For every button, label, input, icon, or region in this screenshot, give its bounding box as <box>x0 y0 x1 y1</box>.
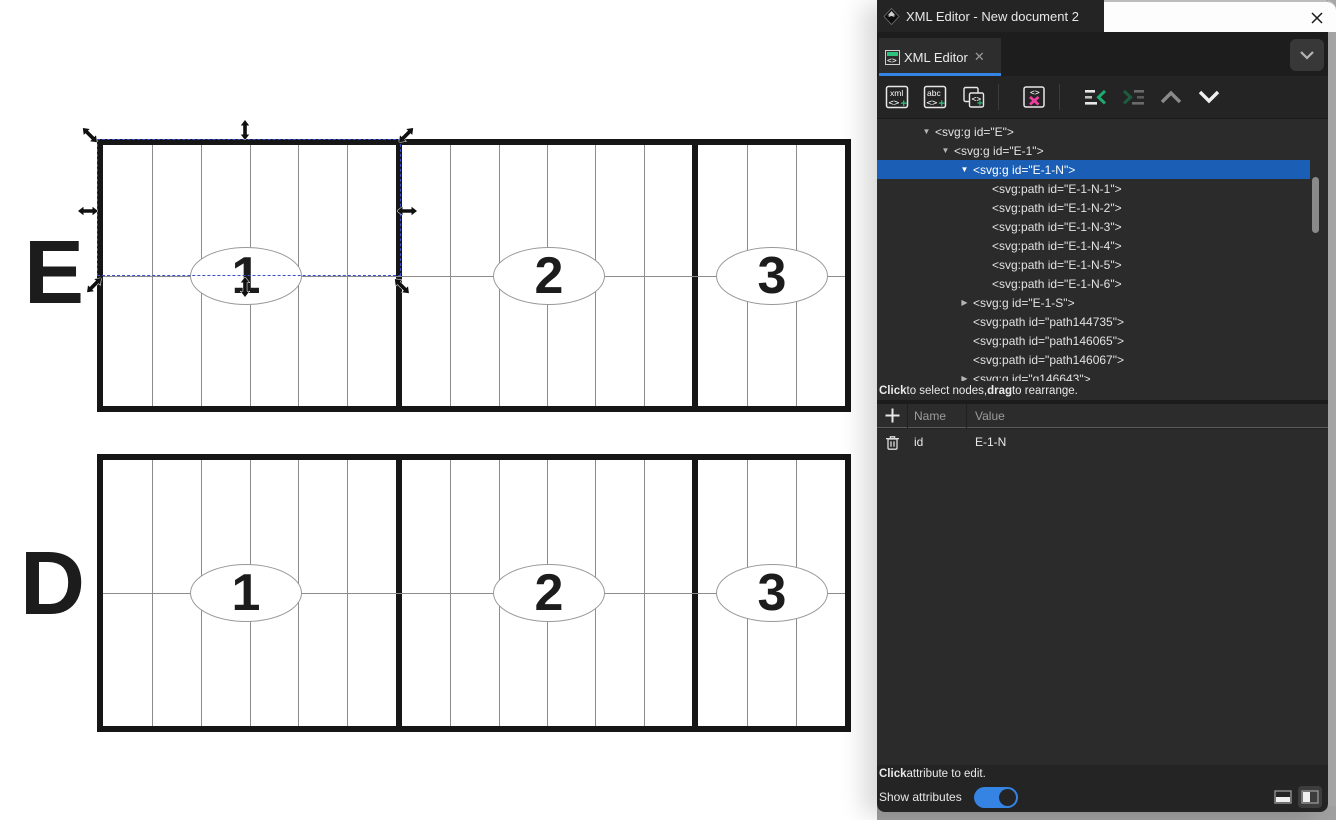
tree-node[interactable]: <svg:path id="path146067"> <box>877 350 1310 369</box>
tree-node-tag: <svg:path id="E-1-N-6"> <box>992 277 1122 291</box>
toolbar-separator <box>998 84 999 110</box>
tree-node[interactable]: <svg:path id="E-1-N-6"> <box>877 274 1310 293</box>
tree-node[interactable]: ▶<svg:g id="g146643"> <box>877 369 1310 381</box>
tab-overflow-menu-button[interactable] <box>1290 39 1324 71</box>
tree-node-tag: <svg:path id="E-1-N-5"> <box>992 258 1122 272</box>
tree-node-tag: <svg:path id="path146065"> <box>973 334 1124 348</box>
show-attributes-label: Show attributes <box>879 790 962 804</box>
tree-node[interactable]: <svg:path id="path146065"> <box>877 331 1310 350</box>
tab-close-icon[interactable]: ✕ <box>974 49 985 65</box>
tree-node-tag: <svg:path id="E-1-N-1"> <box>992 182 1122 196</box>
add-attribute-button[interactable] <box>877 402 907 430</box>
row-label-D: D <box>20 539 85 629</box>
svg-text:<>: <> <box>888 98 899 108</box>
tab-xml-editor[interactable]: <> XML Editor ✕ <box>879 38 1001 76</box>
tree-node[interactable]: ▼<svg:g id="E-1-N"> <box>877 160 1310 179</box>
dialog-title: XML Editor - New document 2 <box>906 9 1079 24</box>
main-window-titlebar <box>1104 0 1336 32</box>
tree-node-tag: <svg:g id="E-1-S"> <box>973 296 1075 310</box>
tree-hint-text: to select nodes, <box>907 385 988 397</box>
toggle-knob <box>999 789 1016 806</box>
tab-label: XML Editor <box>904 50 968 65</box>
expander-collapsed-icon[interactable]: ▶ <box>956 374 973 381</box>
xml-toolbar: xml<>+abc<>+<>+<> <box>877 76 1328 118</box>
layout-vertical-button[interactable] <box>1298 786 1322 808</box>
svg-text:xml: xml <box>890 88 903 98</box>
delete-node-button[interactable]: <> <box>1020 83 1048 111</box>
close-window-button[interactable] <box>1308 9 1326 27</box>
selection-scale-handle[interactable] <box>397 203 417 213</box>
new-text-node-button[interactable]: abc<>+ <box>921 83 949 111</box>
tree-node-tag: <svg:g id="E"> <box>935 125 1014 139</box>
expander-collapsed-icon[interactable]: ▶ <box>956 298 973 307</box>
horizontal-split-icon <box>1274 790 1292 804</box>
tree-node-tag: <svg:path id="path144735"> <box>973 315 1124 329</box>
section-number-ellipse: 2 <box>493 564 605 622</box>
show-attributes-toggle[interactable] <box>974 787 1018 808</box>
attr-hint-text: Click <box>879 768 907 780</box>
tree-hint: Click to select nodes, drag to rearrange… <box>877 381 1328 400</box>
selection-bbox <box>97 139 401 276</box>
duplicate-node-button[interactable]: <>+ <box>959 83 987 111</box>
new-element-node-button[interactable]: xml<>+ <box>883 83 911 111</box>
trash-icon <box>885 434 900 450</box>
tree-node-tag: <svg:g id="g146643"> <box>973 372 1091 382</box>
tree-node[interactable]: <svg:path id="E-1-N-5"> <box>877 255 1310 274</box>
tree-node-tag: <svg:g id="E-1-N"> <box>973 163 1075 177</box>
tree-node-tag: <svg:path id="E-1-N-2"> <box>992 201 1122 215</box>
selection-scale-handle[interactable] <box>243 277 253 297</box>
svg-text:<>: <> <box>926 98 937 108</box>
svg-text:abc: abc <box>927 88 941 98</box>
xml-editor-icon: <> <box>885 50 900 65</box>
move-node-up-button[interactable] <box>1157 83 1185 111</box>
section-number-ellipse: 2 <box>493 247 605 305</box>
tree-scrollbar-thumb[interactable] <box>1312 177 1319 233</box>
tree-node[interactable]: <svg:path id="path144735"> <box>877 312 1310 331</box>
selection-scale-handle[interactable] <box>243 120 253 140</box>
tree-node[interactable]: ▼<svg:g id="E"> <box>877 122 1310 141</box>
grid-frame-D: 123 <box>97 454 851 732</box>
section-number-ellipse: 1 <box>190 564 302 622</box>
indent-node-button[interactable] <box>1119 83 1147 111</box>
section-number-ellipse: 3 <box>716 564 828 622</box>
tree-hint-text: to rearrange. <box>1012 385 1078 397</box>
tree-hint-text: drag <box>987 385 1012 397</box>
tree-node[interactable]: ▼<svg:g id="E-1"> <box>877 141 1310 160</box>
move-node-down-button[interactable] <box>1195 83 1223 111</box>
plus-icon <box>884 407 901 424</box>
xml-tree[interactable]: ▼<svg:g id="E">▼<svg:g id="E-1">▼<svg:g … <box>877 118 1328 381</box>
tree-hint-text: Click <box>879 385 907 397</box>
window-edge-right <box>1328 0 1336 820</box>
expander-open-icon[interactable]: ▼ <box>918 127 935 136</box>
attribute-hint: Click attribute to edit. <box>877 766 1328 782</box>
vertical-split-icon <box>1301 790 1319 804</box>
tree-node-tag: <svg:g id="E-1"> <box>954 144 1044 158</box>
tab-strip: <> XML Editor ✕ <box>877 32 1328 76</box>
xml-editor-panel: XML Editor - New document 2 <> XML Edito… <box>877 0 1328 812</box>
tree-node[interactable]: <svg:path id="E-1-N-3"> <box>877 217 1310 236</box>
attr-name[interactable]: id <box>914 435 966 449</box>
tree-node[interactable]: <svg:path id="E-1-N-1"> <box>877 179 1310 198</box>
layout-horizontal-button[interactable] <box>1271 786 1295 808</box>
svg-text:+: + <box>977 98 983 109</box>
tree-node-tag: <svg:path id="E-1-N-4"> <box>992 239 1122 253</box>
unindent-node-button[interactable] <box>1081 83 1109 111</box>
attr-col-name: Name <box>914 409 966 423</box>
tree-node[interactable]: <svg:path id="E-1-N-4"> <box>877 236 1310 255</box>
selection-scale-handle[interactable] <box>78 203 98 213</box>
svg-text:<>: <> <box>1030 88 1040 97</box>
tree-node-tag: <svg:path id="path146067"> <box>973 353 1124 367</box>
delete-attribute-button[interactable] <box>877 428 907 456</box>
expander-open-icon[interactable]: ▼ <box>956 165 973 174</box>
toolbar-separator <box>1059 84 1060 110</box>
attribute-row[interactable]: id E-1-N <box>877 431 1328 453</box>
attribute-table: id E-1-N <box>877 429 1328 765</box>
close-icon <box>1308 9 1326 27</box>
chevron-down-icon <box>1299 50 1315 60</box>
attribute-table-header: Name Value <box>877 404 1328 428</box>
svg-text:+: + <box>900 98 906 110</box>
drawing-canvas: E123D123 <box>0 0 877 820</box>
tree-node[interactable]: <svg:path id="E-1-N-2"> <box>877 198 1310 217</box>
expander-open-icon[interactable]: ▼ <box>937 146 954 155</box>
section-number-ellipse: 3 <box>716 247 828 305</box>
panel-footer: Show attributes <box>877 782 1328 812</box>
tree-node[interactable]: ▶<svg:g id="E-1-S"> <box>877 293 1310 312</box>
svg-text:+: + <box>938 98 944 110</box>
attr-col-value: Value <box>975 409 1005 423</box>
attr-hint-text: attribute to edit. <box>907 768 986 780</box>
inkscape-logo-icon <box>883 8 900 25</box>
tree-node-tag: <svg:path id="E-1-N-3"> <box>992 220 1122 234</box>
row-label-E: E <box>24 228 84 318</box>
attr-value[interactable]: E-1-N <box>975 435 1006 449</box>
